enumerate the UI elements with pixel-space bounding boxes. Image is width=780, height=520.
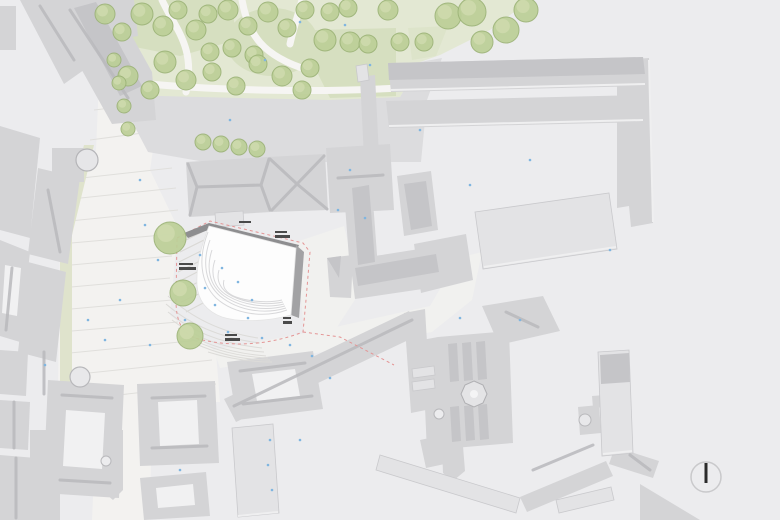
green-strip <box>60 145 94 398</box>
tree-park <box>293 81 311 99</box>
tree-park <box>278 19 296 37</box>
site-plan-stage <box>0 0 780 520</box>
marker-dot <box>349 169 352 172</box>
tree-park <box>223 39 241 57</box>
marker-dot <box>214 304 217 307</box>
tree-park <box>227 77 245 95</box>
lawn-patch <box>408 26 448 60</box>
proposed-building-site <box>166 221 394 365</box>
tree-park <box>435 3 461 29</box>
marker-dot <box>221 267 224 270</box>
octagon-tower <box>461 381 487 407</box>
tree-park <box>176 70 196 90</box>
marker-dot <box>344 24 347 27</box>
tree-street_column <box>112 76 126 90</box>
tree-park <box>339 0 357 17</box>
tree-park <box>141 81 159 99</box>
tree-park <box>131 3 153 25</box>
park-paths <box>130 0 398 92</box>
striped-forecourt <box>166 296 272 362</box>
marker-dots-layer <box>44 21 612 492</box>
marker-dot <box>179 469 182 472</box>
lawn-patch <box>120 0 236 56</box>
marker-dot <box>311 355 314 358</box>
tree-park <box>239 17 257 35</box>
tree-park <box>199 5 217 23</box>
marker-dot <box>459 317 462 320</box>
micro-label-mark <box>179 267 196 270</box>
micro-label-mark <box>283 317 291 319</box>
paving-lines <box>60 14 216 398</box>
tree-street_column <box>107 53 121 67</box>
marker-dot <box>119 299 122 302</box>
north-arrow <box>691 462 721 492</box>
tree-park <box>321 3 339 21</box>
tree-park <box>118 66 138 86</box>
sail-curves <box>202 232 287 314</box>
marker-dot <box>87 319 90 322</box>
north-ring <box>691 462 721 492</box>
buildings-light <box>215 64 633 517</box>
marker-dot <box>269 439 272 442</box>
marker-dot <box>204 287 207 290</box>
tree-park <box>471 31 493 53</box>
marker-dot <box>229 119 232 122</box>
marker-dot <box>44 364 47 367</box>
tree-park <box>218 0 238 20</box>
marker-dot <box>469 184 472 187</box>
marker-dot <box>157 259 160 262</box>
micro-labels-layer <box>179 221 292 341</box>
marker-dot <box>369 64 372 67</box>
marker-dot <box>184 319 187 322</box>
tree-park <box>514 0 538 22</box>
marker-dot <box>289 344 292 347</box>
tree-park <box>95 4 115 24</box>
plaza-area <box>58 0 482 520</box>
marker-dot <box>271 489 274 492</box>
tree-park <box>245 46 263 64</box>
marker-dot <box>149 344 152 347</box>
marker-dot <box>227 331 230 334</box>
tree-park <box>340 32 360 52</box>
tree-plaza <box>170 280 196 306</box>
tree-park <box>359 35 377 53</box>
tree-park <box>378 0 398 20</box>
tree-park <box>415 33 433 51</box>
tree-park <box>458 0 486 26</box>
tree-park <box>113 23 131 41</box>
marker-dot <box>329 377 332 380</box>
map-background <box>0 0 780 520</box>
trees-layer <box>95 0 538 349</box>
marker-dot <box>364 217 367 220</box>
marker-dot <box>264 59 267 62</box>
tree-park <box>301 59 319 77</box>
marker-dot <box>299 439 302 442</box>
micro-label-mark <box>283 321 292 324</box>
marker-dot <box>337 209 340 212</box>
marker-dot <box>419 129 422 132</box>
marker-dot <box>267 464 270 467</box>
proposed-roof-band-right <box>291 245 304 318</box>
lawn-patch <box>226 8 318 76</box>
marker-dot <box>261 337 264 340</box>
micro-label-mark <box>275 231 287 233</box>
tree-park <box>201 43 219 61</box>
tree-park <box>258 2 278 22</box>
marker-dot <box>104 339 107 342</box>
tree-avenue_row <box>249 141 265 157</box>
buildings-base <box>0 0 700 520</box>
marker-dot <box>251 299 254 302</box>
slab-light-edges <box>238 60 653 516</box>
tree-street_column <box>117 99 131 113</box>
tree-avenue_row <box>231 139 247 155</box>
park <box>95 0 530 100</box>
proposed-roof-band-top <box>184 223 299 252</box>
tree-park <box>296 1 314 19</box>
roof-ridge-lines <box>6 6 650 518</box>
courtyards <box>2 265 300 508</box>
round-towers <box>70 149 591 466</box>
micro-label-mark <box>239 221 251 223</box>
marker-dot <box>299 21 302 24</box>
marker-dot <box>519 319 522 322</box>
marker-dot <box>199 254 202 257</box>
tree-park <box>203 63 221 81</box>
tree-park <box>186 20 206 40</box>
micro-label-mark <box>275 235 290 238</box>
proposed-building <box>197 226 296 321</box>
site-boundary-dashed <box>176 221 394 365</box>
marker-dot <box>609 249 612 252</box>
tree-street_column <box>121 122 135 136</box>
lawn-patch <box>312 28 396 98</box>
marker-dot <box>529 159 532 162</box>
marker-dot <box>144 224 147 227</box>
marker-dot <box>139 179 142 182</box>
tree-plaza <box>177 323 203 349</box>
tree-park <box>169 1 187 19</box>
tree-park <box>314 29 336 51</box>
tree-park <box>154 51 176 73</box>
micro-label-mark <box>225 338 240 341</box>
marker-dot <box>237 281 240 284</box>
tree-avenue_row <box>213 136 229 152</box>
tree-park <box>272 66 292 86</box>
tree-park <box>391 33 409 51</box>
roof-dark-facets <box>74 2 645 442</box>
tree-plaza <box>154 222 186 254</box>
site-plan-canvas <box>0 0 780 520</box>
park-ground <box>95 0 530 100</box>
tree-park <box>153 16 173 36</box>
micro-label-mark <box>225 334 237 336</box>
micro-label-mark <box>179 263 193 265</box>
marker-dot <box>247 317 250 320</box>
tree-park <box>493 17 519 43</box>
tree-park <box>249 55 267 73</box>
hatch-wedge <box>178 232 205 312</box>
north-needle-icon <box>705 463 708 483</box>
tree-avenue_row <box>195 134 211 150</box>
gray-paved-band <box>118 58 442 162</box>
